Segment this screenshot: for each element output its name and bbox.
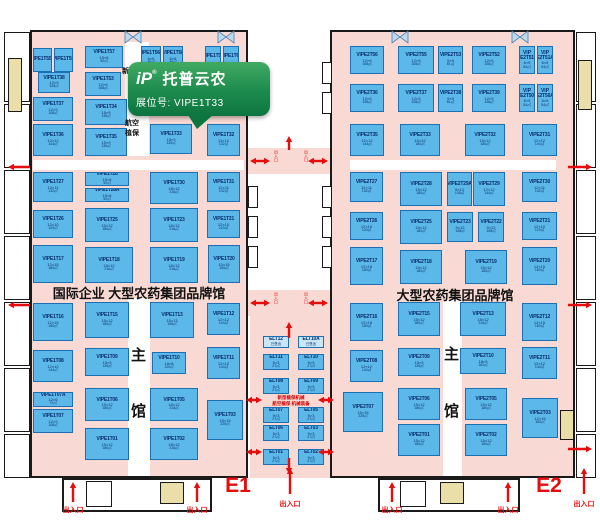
hall-e1-title: 国际企业 大型农药集团品牌馆 [53, 283, 226, 302]
exit-label: 出入口 [303, 292, 309, 304]
exit-label: 出入口 [63, 505, 84, 515]
exit-label: 出入口 [498, 505, 519, 515]
exit-label: 出入口 [187, 505, 208, 515]
banner-pointer [188, 115, 213, 129]
main-hall-char: 主 [131, 344, 146, 365]
main-hall-char: 馆 [131, 400, 146, 421]
zone-label-zhibao: 植保 [125, 128, 139, 138]
label-layer: 新型航空植保主馆主馆国际企业 大型农药集团品牌馆大型农药集团品牌馆新型植保机械航… [0, 0, 600, 523]
exhibitor-banner[interactable]: iP® 托普云农 展位号: VIPE1T33 [128, 62, 270, 116]
exit-label: 出入口 [280, 499, 301, 509]
hall-e1-label: E1 [225, 474, 251, 498]
topyun-logo-icon: iP® [136, 70, 156, 87]
booth-number-label: 展位号: VIPE1T33 [136, 94, 262, 109]
zone-label-hangkong: 航空 [125, 118, 139, 128]
exit-label: 出入口 [574, 499, 595, 509]
exit-label: 出入口 [303, 150, 309, 162]
main-hall-char: 馆 [444, 400, 459, 421]
elt-zone-note: 航空植保 机械装备 [272, 401, 309, 407]
main-hall-char: 主 [444, 343, 459, 364]
exit-label: 出入口 [273, 150, 279, 162]
exhibition-floor-plan: VIPE1T55AVIPE1T55VIPE1T5715×690㎡VIPE1T56… [0, 0, 600, 523]
exit-label: 出入口 [273, 292, 279, 304]
exhibitor-name: 托普云农 [162, 68, 226, 89]
exit-label: 出入口 [382, 505, 403, 515]
hall-e2-label: E2 [536, 474, 562, 498]
hall-e2-title: 大型农药集团品牌馆 [396, 285, 513, 304]
